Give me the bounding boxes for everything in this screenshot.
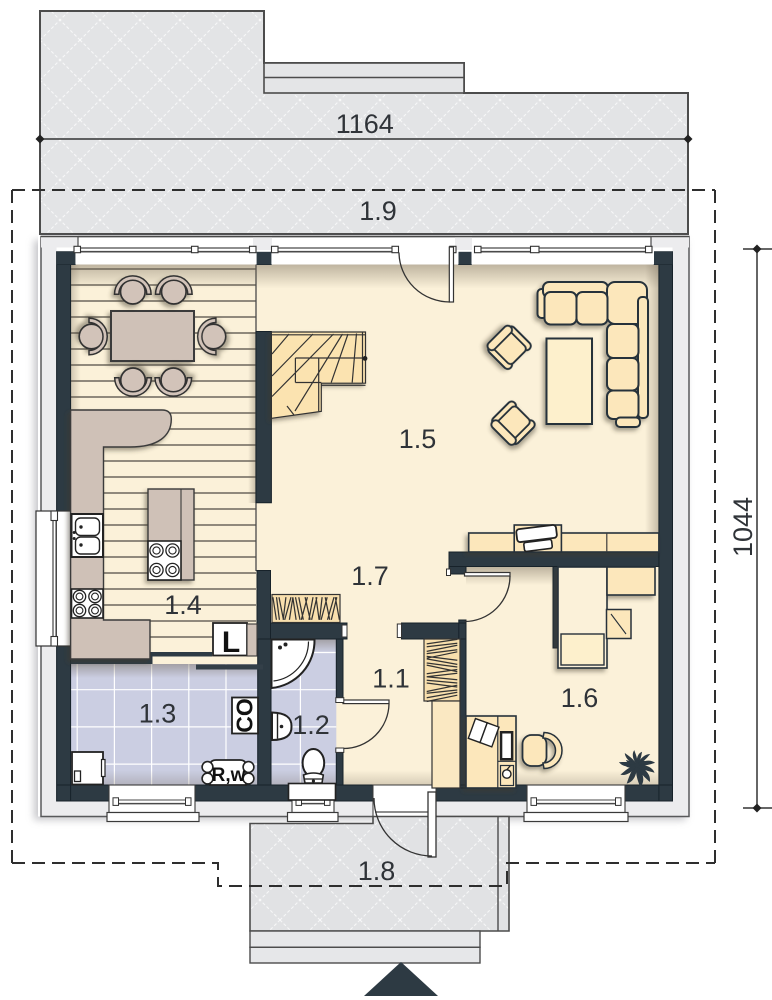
svg-text:1164: 1164 (336, 109, 394, 139)
svg-text:1.4: 1.4 (164, 590, 202, 620)
svg-text:1.5: 1.5 (399, 424, 437, 454)
svg-text:L: L (222, 626, 240, 659)
svg-text:1.3: 1.3 (139, 698, 177, 728)
svg-text:1.8: 1.8 (358, 856, 396, 886)
svg-text:1.6: 1.6 (561, 683, 599, 713)
svg-text:1.9: 1.9 (359, 196, 397, 226)
svg-text:1.2: 1.2 (292, 710, 330, 740)
svg-text:1044: 1044 (728, 497, 758, 557)
svg-text:1.7: 1.7 (351, 561, 389, 591)
svg-text:R,w: R,w (212, 765, 246, 786)
svg-text:1.1: 1.1 (372, 664, 410, 694)
svg-text:CO: CO (232, 698, 258, 733)
